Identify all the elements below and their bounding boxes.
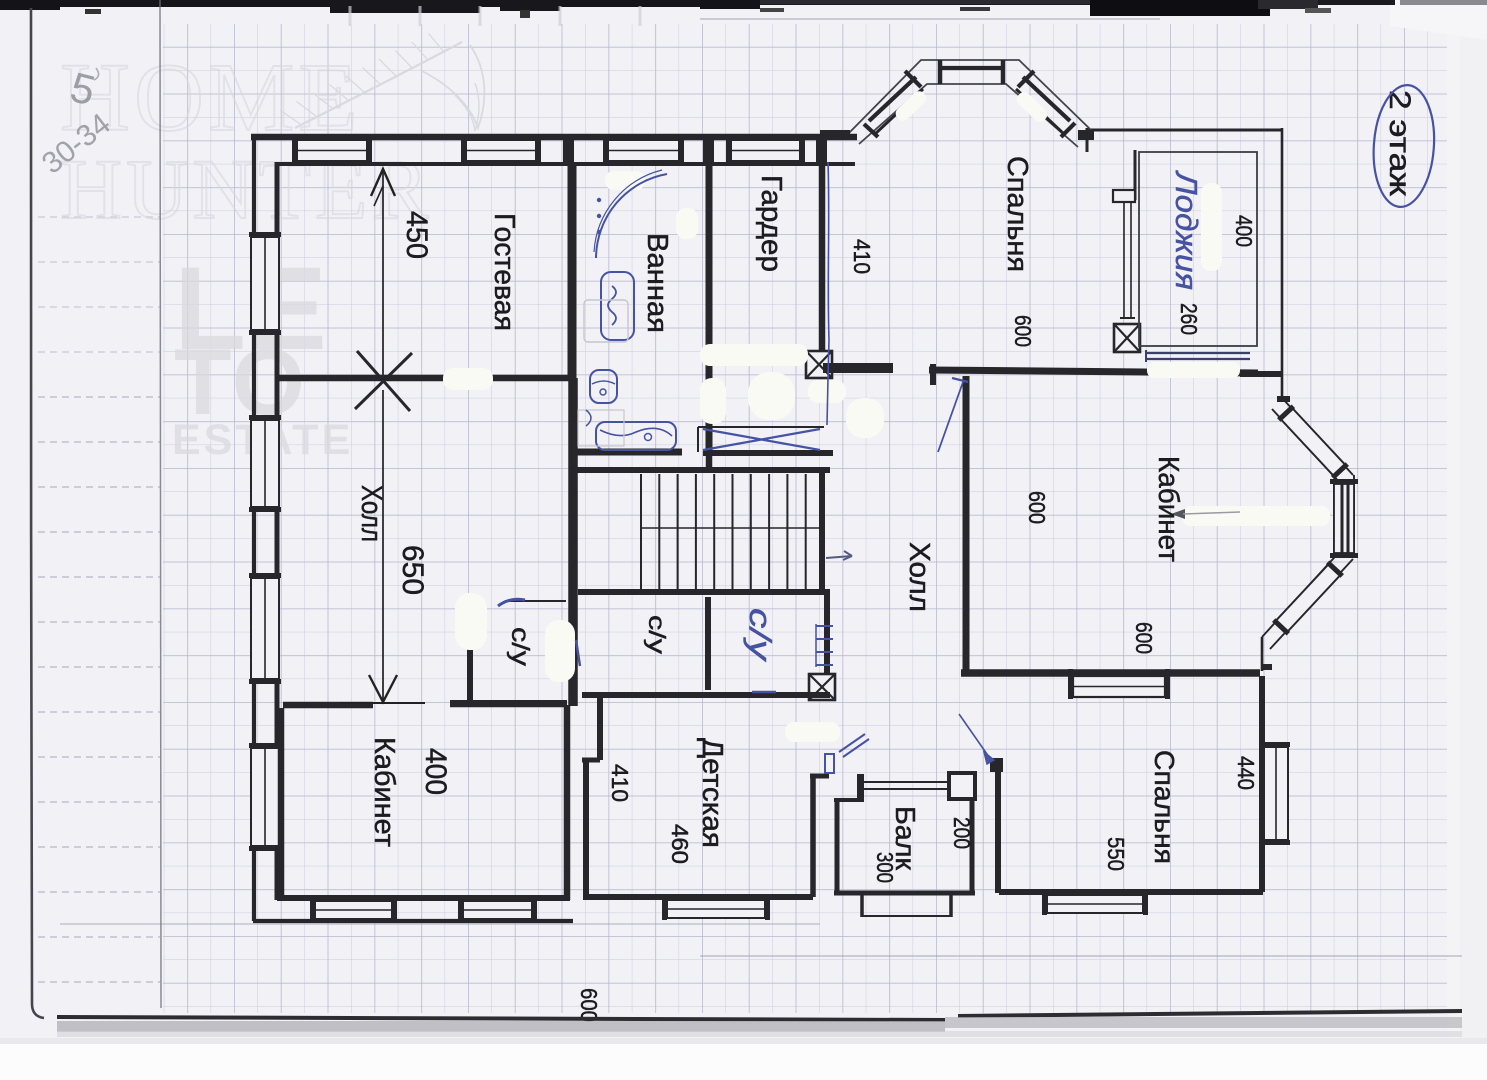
svg-text:400: 400: [419, 748, 452, 795]
svg-text:650: 650: [396, 545, 429, 595]
svg-text:Ванная: Ванная: [641, 233, 673, 333]
svg-text:550: 550: [1103, 837, 1129, 871]
svg-text:Детская: Детская: [696, 738, 728, 848]
svg-text:Спальня: Спальня: [1001, 156, 1033, 272]
svg-text:600: 600: [1024, 491, 1050, 524]
svg-text:Лоджия: Лоджия: [1169, 170, 1204, 290]
svg-text:410: 410: [607, 764, 633, 802]
svg-text:с/у: с/у: [506, 627, 534, 667]
svg-text:с/у: с/у: [644, 615, 670, 655]
svg-text:Гостевая: Гостевая: [488, 213, 520, 331]
svg-text:Спальня: Спальня: [1149, 750, 1180, 864]
svg-text:HUNTER: HUNTER: [60, 141, 433, 237]
svg-text:2 этаж: 2 этаж: [1383, 90, 1416, 196]
svg-text:300: 300: [872, 852, 898, 883]
svg-text:440: 440: [1233, 756, 1259, 790]
svg-text:с/у: с/у: [743, 608, 778, 663]
svg-text:Кабинет: Кабинет: [368, 737, 400, 847]
svg-text:410: 410: [849, 239, 875, 274]
svg-text:Холл: Холл: [903, 542, 935, 612]
svg-text:460: 460: [667, 824, 693, 864]
svg-text:200: 200: [949, 817, 975, 849]
svg-text:450: 450: [400, 211, 433, 259]
svg-text:400: 400: [1231, 215, 1257, 247]
svg-text:Кабинет: Кабинет: [1152, 456, 1184, 562]
svg-text:Гардер: Гардер: [755, 175, 787, 272]
svg-text:600: 600: [1131, 622, 1157, 654]
svg-text:Холл: Холл: [355, 485, 387, 542]
svg-text:260: 260: [1176, 303, 1202, 335]
svg-text:600: 600: [1010, 315, 1036, 347]
